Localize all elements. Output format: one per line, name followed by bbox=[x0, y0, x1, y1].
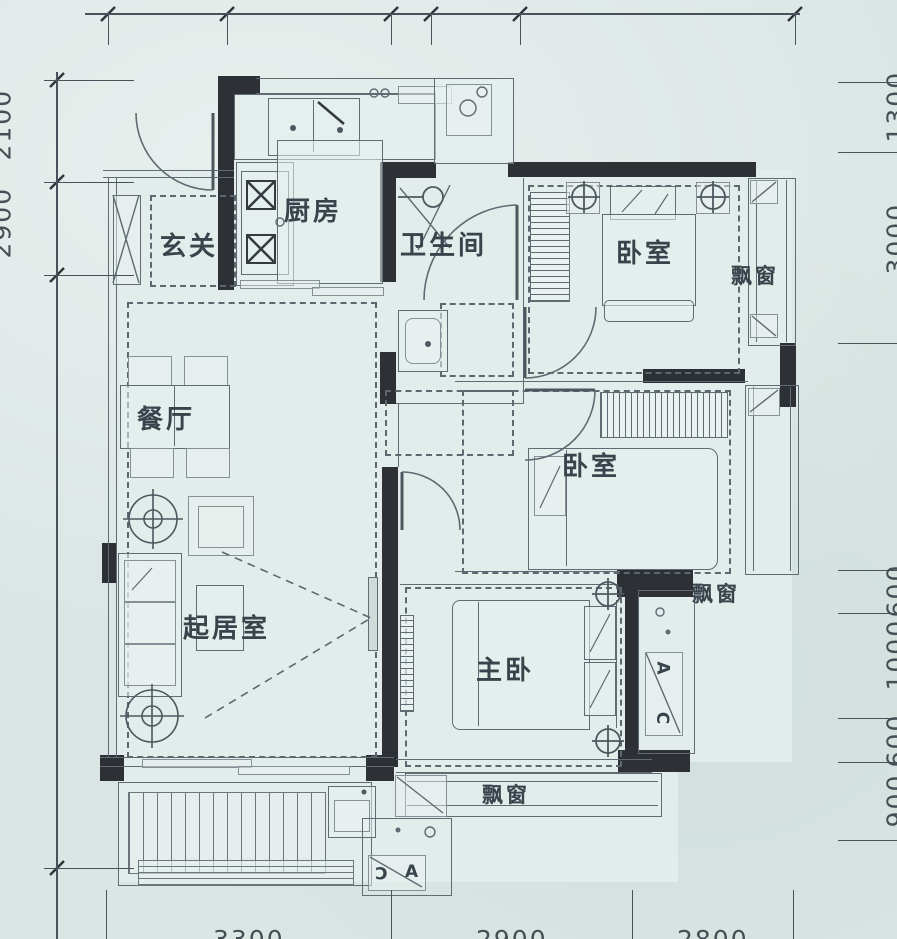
bay-mid-corner-diag bbox=[750, 390, 778, 412]
dim-value-right-5: 600 bbox=[882, 713, 897, 769]
lamp-symbol-master-top bbox=[592, 578, 624, 610]
counter-fixture-dot1 bbox=[370, 89, 378, 97]
lamp-symbol-master-bottom bbox=[592, 725, 624, 757]
dim-ext-top-2 bbox=[227, 13, 228, 45]
dim-line-left bbox=[56, 72, 58, 939]
dim-ext-right-8 bbox=[838, 840, 897, 841]
label-bay-window-mid: 飘窗 bbox=[692, 578, 740, 608]
dim-value-right-6: 900 bbox=[882, 773, 897, 829]
stove-burner-1-x bbox=[247, 181, 275, 209]
dim-ext-top-6 bbox=[795, 13, 796, 45]
lamp-symbol-bedroom-top-right bbox=[697, 181, 729, 213]
toilet-bowl bbox=[423, 187, 443, 207]
dim-ext-left-1 bbox=[44, 80, 134, 81]
dim-value-right-2: 3000 bbox=[882, 219, 897, 275]
dim-value-left-2: 2900 bbox=[0, 203, 17, 259]
ac-right-diagonal bbox=[646, 653, 680, 733]
dim-ext-bottom-1 bbox=[106, 890, 107, 939]
master-door-arc bbox=[402, 472, 460, 530]
dim-ext-left-4 bbox=[44, 868, 134, 869]
shoe-cabinet-x bbox=[113, 195, 139, 283]
label-bedroom-top: 卧室 bbox=[616, 233, 674, 270]
bay-top-corner-diag1 bbox=[752, 182, 776, 202]
label-foyer: 玄关 bbox=[160, 226, 218, 263]
dim-ext-right-3 bbox=[838, 343, 897, 344]
sink-faucet bbox=[318, 102, 344, 124]
dim-ext-left-3 bbox=[44, 275, 134, 276]
dim-value-right-4: 1000 bbox=[882, 635, 897, 691]
sink-drain-left bbox=[290, 125, 296, 131]
pillow-fold-bedroom-top bbox=[622, 190, 668, 214]
counter-fixture-dot2 bbox=[381, 89, 389, 97]
lamp-symbol-bedroom-top-left bbox=[568, 181, 600, 213]
label-master-bedroom: 主卧 bbox=[476, 650, 534, 687]
ac-bottom-diagonal bbox=[370, 857, 422, 887]
entry-door-arc bbox=[136, 113, 213, 190]
dim-ext-left-2 bbox=[44, 182, 134, 183]
sink-drain-right bbox=[337, 127, 343, 133]
dim-ext-bottom-4 bbox=[793, 890, 794, 939]
ac-right-dot2 bbox=[666, 630, 671, 635]
dim-value-bottom-3: 2800 bbox=[677, 925, 747, 939]
dim-value-bottom-2: 2900 bbox=[476, 925, 546, 939]
label-bathroom: 卫生间 bbox=[400, 225, 487, 262]
washing-machine-dot bbox=[362, 790, 367, 795]
dim-value-right-1: 1300 bbox=[882, 87, 897, 143]
label-bay-window-bottom: 飘窗 bbox=[482, 779, 530, 809]
ac-right-dot1 bbox=[656, 608, 664, 616]
label-living: 起居室 bbox=[183, 608, 270, 645]
plant-symbol-lower bbox=[120, 684, 184, 748]
stove-center-knob bbox=[276, 218, 284, 226]
dim-ext-bottom-2 bbox=[391, 890, 392, 939]
dim-value-left-1: 2100 bbox=[0, 105, 17, 161]
counter-fixture-dot3 bbox=[477, 87, 487, 97]
bay-bottom-corner-diag bbox=[397, 777, 443, 813]
dim-value-bottom-1: 3300 bbox=[213, 925, 283, 939]
dim-ext-top-1 bbox=[108, 13, 109, 45]
washbasin-drain bbox=[425, 341, 431, 347]
bedroom-top-door-arc bbox=[525, 307, 596, 378]
dim-ext-top-3 bbox=[391, 13, 392, 45]
dim-value-right-3: 600 bbox=[882, 563, 897, 619]
plan-linework bbox=[0, 0, 897, 939]
pillow-fold-bedroom-mid bbox=[540, 466, 560, 508]
pillow-fold-master-2 bbox=[590, 670, 610, 708]
dim-ext-top-5 bbox=[520, 13, 521, 45]
label-dining: 餐厅 bbox=[137, 399, 195, 436]
dim-ext-top-4 bbox=[431, 13, 432, 45]
dim-ext-bottom-3 bbox=[632, 890, 633, 939]
label-kitchen: 厨房 bbox=[284, 191, 342, 228]
duct-heater bbox=[460, 100, 476, 116]
label-bedroom-mid: 卧室 bbox=[562, 446, 620, 483]
sofa-pillow-fold bbox=[132, 568, 152, 590]
pillow-fold-master-1 bbox=[590, 614, 610, 652]
dim-line-top bbox=[85, 13, 800, 15]
dim-ext-right-2 bbox=[838, 152, 897, 153]
floor-plan: A C C A bbox=[0, 0, 897, 939]
bay-top-corner-diag2 bbox=[752, 316, 776, 336]
plant-symbol-upper bbox=[123, 489, 183, 549]
ac-bottom-dot2 bbox=[396, 828, 401, 833]
stove-burner-2-x bbox=[247, 235, 275, 263]
ac-bottom-dot1 bbox=[425, 827, 435, 837]
label-bay-window-top: 飘窗 bbox=[731, 260, 779, 290]
